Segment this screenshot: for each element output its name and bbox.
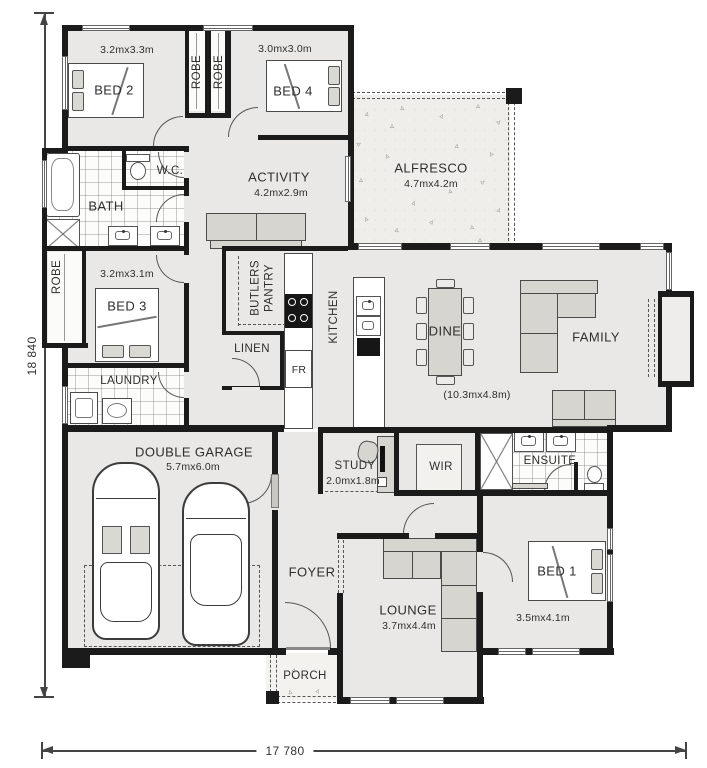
dashed-line	[352, 92, 510, 93]
ensuite-bench	[512, 483, 548, 489]
bed1-label: BED 1	[537, 564, 577, 579]
foyer-label: FOYER	[289, 565, 336, 580]
island-sink	[356, 296, 381, 316]
wall	[337, 533, 409, 539]
window	[450, 243, 490, 250]
vanity-basin	[514, 431, 544, 452]
bed2-label: BED 2	[94, 83, 134, 98]
activity-label: ACTIVITY	[248, 170, 310, 185]
ensuite-shower	[480, 433, 513, 490]
window	[640, 243, 664, 250]
door-opening	[184, 372, 189, 398]
fridge-label: FR	[292, 364, 306, 376]
wall	[435, 533, 480, 539]
depth-dimension: 18 840	[23, 327, 41, 384]
wall	[318, 427, 613, 433]
width-dimension-value: 17 780	[256, 743, 313, 759]
chair	[463, 297, 474, 314]
garage-door-panel	[271, 474, 279, 508]
shower	[46, 219, 80, 249]
dashed-line	[272, 696, 336, 697]
wall	[205, 28, 211, 115]
lounge-size: 3.7mx4.4m	[382, 620, 436, 632]
car-windshield	[96, 498, 156, 499]
tap	[122, 230, 125, 233]
car	[182, 482, 250, 646]
wall	[477, 648, 483, 704]
cushion-split	[442, 618, 476, 619]
alfresco-size: 4.7mx4.2m	[404, 178, 458, 190]
toilet-tank	[126, 154, 150, 162]
car-roof	[190, 534, 242, 606]
wall	[225, 28, 231, 115]
wall	[506, 88, 522, 104]
wall	[337, 593, 343, 704]
chair	[463, 349, 474, 366]
wall	[82, 250, 86, 345]
chair	[436, 376, 455, 385]
kitchen-cabinets	[284, 253, 313, 429]
width-dimension: 17 780	[256, 742, 313, 760]
car-seat	[130, 526, 150, 554]
bathtub-inner	[51, 158, 74, 211]
wall	[62, 363, 186, 368]
wall	[62, 648, 280, 655]
dashed-line	[238, 256, 239, 326]
door-opening	[232, 387, 260, 390]
robe-right-label: ROBE	[213, 55, 225, 89]
car-rear	[100, 562, 152, 622]
bed2-size: 3.2mx3.3m	[100, 44, 154, 56]
window	[607, 554, 613, 602]
door-opening	[184, 152, 189, 178]
window	[607, 528, 613, 550]
laundry-sink	[102, 398, 132, 424]
car	[92, 462, 160, 640]
wall	[62, 425, 284, 432]
vanity-basin	[150, 226, 180, 246]
wall	[475, 430, 480, 494]
wir-label: WIR	[429, 461, 453, 473]
bed-fold	[97, 316, 156, 328]
cushion-split	[412, 552, 413, 578]
wall	[258, 135, 348, 140]
width-dimension-line	[42, 750, 686, 752]
trough-inner	[75, 398, 93, 418]
wall	[280, 333, 284, 390]
wall	[222, 331, 284, 335]
family-sofa-back	[520, 280, 598, 294]
dashed-line	[343, 535, 344, 593]
front-door-leaf[interactable]	[286, 647, 330, 650]
lounge-label: LOUNGE	[379, 603, 436, 618]
dashed-line	[508, 92, 509, 246]
bed4-size: 3.0mx3.0m	[258, 43, 312, 55]
cushion-split	[521, 333, 557, 334]
study-label: STUDY	[335, 460, 376, 472]
alfresco-label: ALFRESCO	[394, 161, 467, 176]
window	[203, 25, 253, 31]
chair	[463, 323, 474, 340]
wall	[607, 425, 672, 432]
ensuite-label: ENSUITE	[524, 455, 577, 467]
burner	[300, 298, 308, 306]
cushion-split	[256, 214, 257, 240]
concrete-texture-triangle: ▵	[476, 102, 480, 110]
dashed-line	[648, 299, 649, 377]
linen-label: LINEN	[234, 343, 270, 355]
family-label: FAMILY	[572, 330, 620, 345]
wall	[272, 432, 278, 648]
bed3-size: 3.2mx3.1m	[100, 268, 154, 280]
dine-label: DINE	[429, 324, 462, 339]
activity-sofa	[206, 213, 306, 241]
door-opening	[477, 552, 483, 592]
door-opening	[184, 255, 189, 283]
window	[666, 252, 672, 290]
burner	[288, 298, 296, 306]
window	[532, 648, 580, 655]
window	[350, 697, 390, 704]
window	[82, 25, 130, 31]
family-sofa-seat	[557, 293, 596, 318]
cushion-split	[442, 585, 476, 586]
window	[42, 160, 47, 208]
wall	[394, 490, 613, 496]
porch-label: PORCH	[283, 670, 327, 682]
basin	[362, 321, 375, 330]
cushion-split	[584, 391, 585, 419]
robe-rail	[64, 254, 65, 341]
wall	[394, 430, 399, 494]
arrow-right-icon	[675, 746, 686, 754]
bed3-label: BED 3	[107, 299, 147, 314]
burner	[300, 314, 308, 322]
wall	[42, 343, 88, 348]
wall	[222, 250, 226, 335]
wall	[266, 691, 279, 704]
window	[345, 156, 351, 202]
wall	[122, 150, 126, 190]
pillow	[328, 66, 340, 85]
car-windshield	[186, 518, 246, 519]
concrete-texture-triangle: ▵	[359, 176, 363, 184]
wall	[666, 379, 672, 432]
toilet-bowl	[130, 162, 146, 180]
toilet-bowl	[587, 466, 602, 483]
bed1-size: 3.5mx4.1m	[516, 612, 570, 624]
sink-bowl	[107, 403, 127, 418]
garage-size: 5.7mx6.0m	[166, 461, 220, 473]
floor-plan: ▵▵▵▵▵▵▵▵▵▵▵▵▵▵▵▵▵▵▵▵▵▵▵	[0, 0, 707, 768]
dashed-line	[654, 299, 655, 377]
wall	[318, 430, 323, 494]
wall	[185, 28, 189, 115]
window	[62, 56, 68, 110]
wall	[62, 146, 186, 151]
burner	[288, 314, 296, 322]
garage-label: DOUBLE GARAGE	[135, 445, 253, 460]
living-size-label: (10.3mx4.8m)	[443, 389, 510, 401]
dashed-line	[272, 702, 336, 703]
study-size: 2.0mx1.8m	[326, 475, 380, 487]
wall	[348, 25, 354, 249]
bed4-label: BED 4	[273, 84, 313, 99]
bathtub	[46, 153, 80, 217]
cooktop	[285, 294, 312, 328]
family-sofa-chaise	[520, 293, 558, 373]
pillow	[72, 70, 84, 89]
dashed-line	[352, 98, 510, 99]
tap	[560, 435, 563, 438]
arrow-left-icon	[42, 746, 53, 754]
chair	[416, 297, 427, 314]
car-seat	[102, 526, 122, 554]
family-sofa-2	[552, 390, 616, 420]
window	[358, 243, 402, 250]
arrow-down-icon	[40, 687, 48, 698]
pillow	[591, 573, 603, 594]
vanity-basin	[546, 431, 576, 452]
bay-window-seat	[662, 297, 690, 381]
dashed-line	[338, 535, 339, 593]
pillow	[591, 549, 603, 570]
island-sink	[356, 316, 381, 336]
activity-size: 4.2mx2.9m	[254, 187, 308, 199]
wall	[122, 186, 186, 190]
window	[498, 648, 526, 655]
wall	[222, 246, 348, 251]
tap	[528, 435, 531, 438]
chair	[436, 279, 455, 288]
wall	[42, 246, 188, 251]
monitor	[380, 446, 385, 472]
window	[396, 697, 444, 704]
depth-dimension-line	[44, 14, 46, 698]
window	[62, 386, 68, 424]
window	[542, 243, 600, 250]
tap	[368, 300, 371, 303]
laundry-trough	[70, 392, 98, 424]
door-opening	[184, 196, 189, 222]
kitchen-label: KITCHEN	[328, 290, 340, 343]
dishwasher	[357, 338, 380, 356]
pillow	[102, 345, 124, 358]
bath-label: BATH	[88, 199, 123, 214]
depth-dimension-value: 18 840	[24, 327, 40, 384]
robe-bed3-label: ROBE	[51, 260, 63, 294]
tap	[164, 230, 167, 233]
pillow	[129, 345, 151, 358]
wc-label: W.C.	[157, 165, 184, 177]
lounge-sofa-seat	[383, 551, 441, 579]
lounge-sofa-back	[383, 538, 477, 552]
concrete-texture-triangle: ▵	[390, 122, 394, 130]
chair	[416, 349, 427, 366]
butlers-pantry-label: BUTLERS PANTRY	[249, 254, 278, 322]
pillow	[72, 92, 84, 111]
arrow-up-icon	[40, 14, 48, 25]
lounge-sofa-chaise	[441, 551, 477, 652]
chair	[416, 323, 427, 340]
dashed-line	[514, 92, 515, 246]
vanity-basin	[108, 226, 138, 246]
laundry-label: LAUNDRY	[100, 375, 158, 387]
pillow	[328, 87, 340, 106]
robe-left-label: ROBE	[191, 55, 203, 89]
